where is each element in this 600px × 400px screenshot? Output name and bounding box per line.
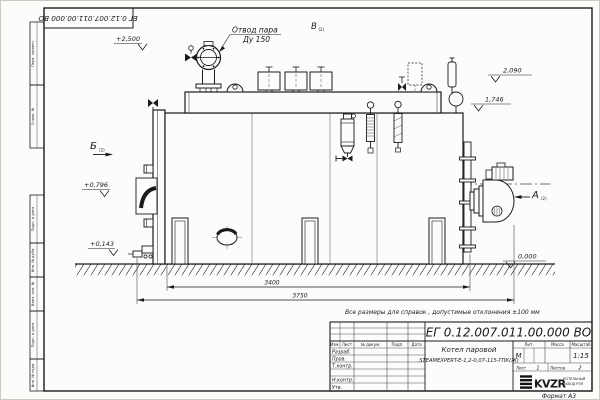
svg-text:Подп. и дата: Подп. и дата	[31, 323, 35, 347]
callout-steam-line1: Отвод пара	[232, 26, 278, 35]
stamp-header-labels: Изм. Лист № докум. Подп. Дата	[330, 342, 422, 347]
lit-value: М	[515, 352, 521, 360]
elevation-2090: 2,090	[503, 67, 522, 75]
elevation-0000: 0,000	[518, 253, 537, 261]
view-b-sub: (2)	[99, 148, 105, 153]
view-v-sub: (2)	[319, 27, 325, 32]
view-b-label: Б	[90, 141, 97, 152]
svg-text:Справ. №: Справ. №	[31, 107, 35, 125]
format-label: Формат А3	[542, 393, 576, 400]
svg-text:Т.контр.: Т.контр.	[332, 364, 353, 370]
steam-outlet-valve	[185, 42, 221, 93]
sheet-count-row: Лист 1 Листов 2	[516, 366, 582, 372]
kvzr-logo: KVZR КОТЕЛЬНЫЙ ЗАВОД РЭП	[520, 376, 586, 391]
product-name-line2: STEAMEXPERT-Е-1,2-0,07-115-ГПК(Ж)	[419, 358, 518, 364]
view-a-sub: (2)	[541, 196, 547, 201]
stamp-right-labels: Лит. Масса Масштаб	[524, 342, 591, 347]
logo-subtext-2: ЗАВОД РЭП	[563, 382, 584, 386]
safety-valve-boxes	[258, 67, 332, 92]
product-name-line1: Котел паровой	[442, 346, 497, 354]
steam-outlet-callout: Отвод пара Ду 150	[219, 26, 281, 53]
scale-value: 1:15	[573, 352, 589, 360]
coil-spring-icon	[520, 377, 532, 388]
svg-text:Инв. № подл.: Инв. № подл.	[31, 363, 35, 388]
doc-number-top-rotated: ЕГ 0.12.007.011.00.000 ВО	[38, 14, 137, 23]
logo-text: KVZR	[534, 378, 567, 391]
svg-text:Подп.: Подп.	[391, 342, 403, 347]
elevation-2500: +2,500	[116, 35, 140, 43]
svg-text:Утв.: Утв.	[332, 385, 342, 391]
svg-text:2: 2	[578, 366, 581, 372]
elevation-0143: +0,143	[90, 240, 114, 248]
burner	[470, 163, 514, 222]
boiler-general-view-drawing: ЕГ 0.12.007.011.00.000 ВО Перв. примен. …	[0, 0, 600, 400]
logo-subtext-1: КОТЕЛЬНЫЙ	[563, 376, 586, 381]
margin-stamp-labels: Перв. примен. Справ. № Подп. и дата Инв.…	[31, 40, 35, 387]
svg-text:Инв. № дубл.: Инв. № дубл.	[31, 248, 35, 273]
svg-text:Взам. инв. №: Взам. инв. №	[31, 282, 35, 307]
stamp-doc-number: ЕГ 0.12.007.011.00.000 ВО	[426, 326, 592, 340]
svg-text:Подп. и дата: Подп. и дата	[31, 207, 35, 231]
svg-text:Н.контр.: Н.контр.	[332, 378, 353, 384]
drum-top-fittings	[398, 63, 422, 92]
svg-text:Лист: Лист	[342, 342, 353, 347]
svg-text:Лист: Лист	[516, 366, 527, 371]
svg-text:Дата: Дата	[411, 342, 422, 347]
svg-text:Изм.: Изм.	[330, 342, 339, 347]
view-v-label: В	[311, 22, 317, 32]
callout-steam-line2: Ду 150	[242, 35, 270, 44]
svg-text:Листов: Листов	[550, 366, 566, 371]
svg-text:Масштаб: Масштаб	[571, 342, 591, 347]
ground	[75, 264, 555, 276]
svg-text:Пров.: Пров.	[332, 357, 346, 363]
svg-text:1: 1	[536, 366, 539, 372]
view-a-label: А	[531, 190, 539, 201]
elevation-0796: +0,796	[84, 181, 108, 189]
stamp-signer-labels: Разраб. Пров. Т.контр. Н.контр. Утв.	[332, 350, 353, 392]
dim-3750: 3750	[292, 293, 307, 300]
reference-note: Все размеры для справок , допустимые отк…	[345, 309, 540, 316]
svg-text:Масса: Масса	[551, 342, 564, 347]
pressure-gauge-siphon	[448, 58, 463, 113]
svg-text:Лит.: Лит.	[524, 342, 533, 347]
svg-text:Разраб.: Разраб.	[332, 350, 351, 356]
svg-text:№ докум.: № докум.	[361, 342, 381, 347]
dim-3400: 3400	[264, 280, 279, 287]
elevation-1746: 1,746	[485, 96, 504, 104]
drawing-sheet: ЕГ 0.12.007.011.00.000 ВО Перв. примен. …	[0, 0, 600, 400]
svg-text:Перв. примен.: Перв. примен.	[31, 40, 35, 67]
